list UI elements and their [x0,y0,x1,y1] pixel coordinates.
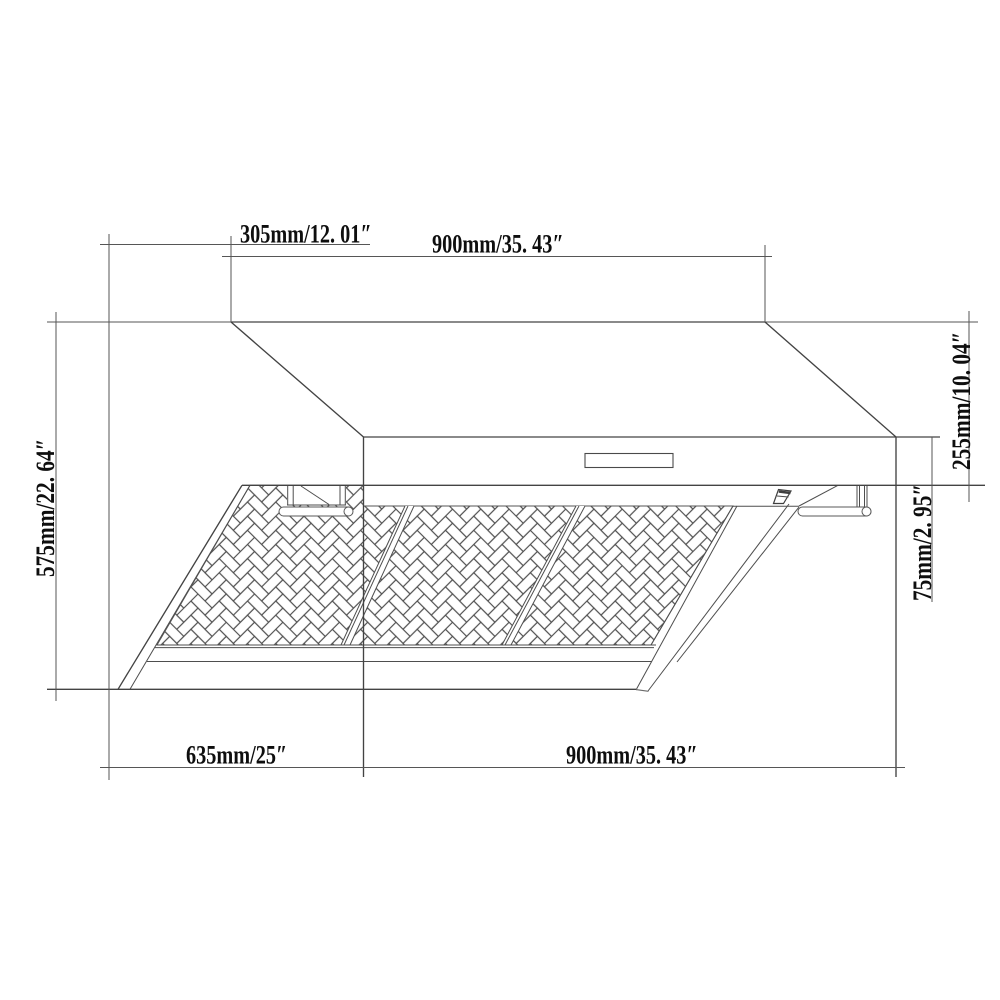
svg-text:75mm/2. 95″: 75mm/2. 95″ [909,484,937,601]
svg-text:900mm/35. 43″: 900mm/35. 43″ [432,230,564,259]
svg-text:635mm/25″: 635mm/25″ [186,741,287,770]
svg-text:900mm/35. 43″: 900mm/35. 43″ [566,741,698,770]
svg-text:575mm/22. 64″: 575mm/22. 64″ [32,439,60,577]
svg-text:255mm/10. 04″: 255mm/10. 04″ [948,332,976,470]
svg-text:305mm/12. 01″: 305mm/12. 01″ [240,220,372,249]
